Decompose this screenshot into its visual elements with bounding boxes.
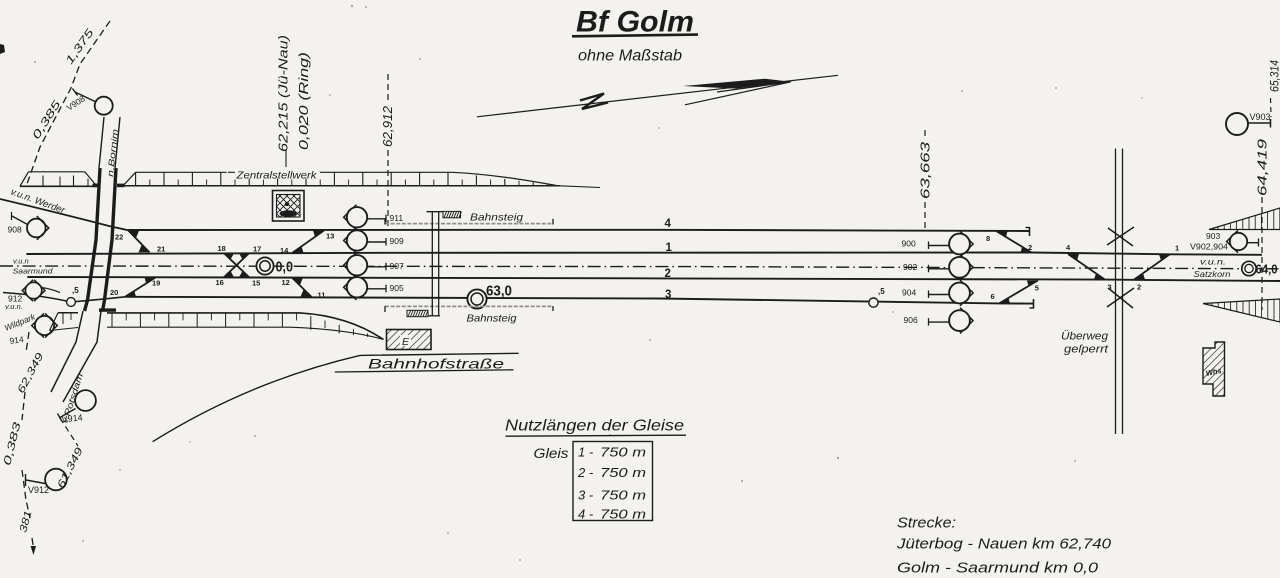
svg-text:V903: V903 [1250, 112, 1271, 122]
svg-text:13: 13 [326, 232, 334, 241]
svg-text:E: E [402, 336, 410, 348]
svg-text:Bahnsteig: Bahnsteig [467, 313, 517, 325]
svg-text:4 -: 4 - [578, 507, 594, 522]
svg-text:v.u.n.: v.u.n. [5, 302, 23, 311]
svg-text:19: 19 [152, 279, 160, 288]
svg-text:750 m: 750 m [600, 465, 646, 480]
svg-text:750 m: 750 m [600, 507, 646, 522]
svg-text:8: 8 [986, 234, 990, 243]
svg-text:Strecke:: Strecke: [897, 516, 956, 532]
svg-text:62,215 (Jü-Nau): 62,215 (Jü-Nau) [277, 35, 291, 152]
svg-text:904: 904 [902, 288, 916, 298]
svg-text:907: 907 [390, 261, 404, 271]
svg-text:,5: ,5 [878, 287, 885, 296]
svg-text:22: 22 [115, 233, 123, 242]
svg-text:14: 14 [280, 246, 289, 255]
svg-text:63,0: 63,0 [486, 284, 512, 300]
svg-text:902: 902 [903, 262, 917, 272]
svg-text:2: 2 [1028, 243, 1032, 252]
svg-text:63,663: 63,663 [919, 142, 933, 199]
svg-text:914: 914 [9, 334, 25, 346]
svg-text:20: 20 [110, 288, 118, 297]
svg-text:Gleis: Gleis [534, 446, 569, 461]
svg-text:65,314: 65,314 [1268, 60, 1280, 92]
svg-text:1: 1 [1175, 244, 1179, 253]
svg-text:2: 2 [665, 268, 671, 280]
svg-text:0,0: 0,0 [276, 259, 294, 276]
svg-text:Bf Golm: Bf Golm [576, 6, 694, 39]
svg-text:16: 16 [216, 278, 224, 287]
svg-text:V902,904: V902,904 [1190, 242, 1228, 252]
svg-text:903: 903 [1206, 231, 1220, 241]
svg-text:Satzkorn: Satzkorn [1194, 270, 1232, 279]
svg-text:2: 2 [1137, 283, 1141, 292]
svg-text:18: 18 [218, 244, 226, 253]
svg-text:12: 12 [282, 278, 290, 287]
svg-text:911: 911 [390, 213, 404, 223]
svg-text:1 -: 1 - [578, 445, 594, 460]
svg-text:906: 906 [904, 315, 918, 325]
svg-text:1: 1 [666, 242, 673, 254]
svg-text:Jüterbog - Nauen km 62,740: Jüterbog - Nauen km 62,740 [896, 537, 1111, 553]
svg-text:Überweg: Überweg [1061, 331, 1109, 343]
svg-text:908: 908 [8, 225, 22, 235]
svg-text:,5: ,5 [72, 286, 79, 295]
svg-text:Bahnsteig: Bahnsteig [470, 212, 523, 224]
svg-text:2 -: 2 - [577, 465, 594, 480]
svg-text:Saarmund: Saarmund [13, 267, 54, 276]
svg-text:62,912: 62,912 [381, 106, 395, 147]
svg-text:ohne Maßstab: ohne Maßstab [578, 48, 682, 65]
svg-text:V912: V912 [28, 485, 49, 495]
svg-text:17: 17 [253, 245, 261, 254]
svg-text:5: 5 [1035, 284, 1039, 293]
svg-text:Nutzlängen der Gleise: Nutzlängen der Gleise [505, 418, 684, 435]
svg-text:v.u.n: v.u.n [13, 257, 29, 266]
svg-text:11: 11 [318, 291, 326, 300]
svg-text:geſperrt: geſperrt [1064, 344, 1109, 356]
svg-text:64,419: 64,419 [1256, 139, 1270, 196]
svg-text:750 m: 750 m [600, 488, 646, 503]
svg-text:909: 909 [390, 236, 404, 246]
svg-text:15: 15 [252, 279, 260, 288]
svg-text:3: 3 [1108, 283, 1112, 292]
svg-text:6: 6 [991, 292, 995, 301]
svg-text:750 m: 750 m [600, 445, 646, 460]
svg-text:3 -: 3 - [578, 488, 594, 503]
svg-text:v.u.n.: v.u.n. [1200, 258, 1226, 267]
svg-text:Golm - Saarmund km 0,0: Golm - Saarmund km 0,0 [897, 561, 1098, 577]
svg-text:905: 905 [390, 283, 404, 293]
svg-text:64,0: 64,0 [1256, 262, 1278, 277]
svg-text:21: 21 [157, 245, 165, 254]
svg-text:0,020 (Ring): 0,020 (Ring) [297, 52, 311, 150]
svg-text:3: 3 [665, 289, 671, 301]
svg-text:Zentralstellwerk: Zentralstellwerk [235, 170, 317, 182]
svg-text:900: 900 [902, 239, 916, 249]
svg-text:Bahnhofstraße: Bahnhofstraße [368, 356, 504, 372]
svg-text:4: 4 [665, 218, 672, 230]
